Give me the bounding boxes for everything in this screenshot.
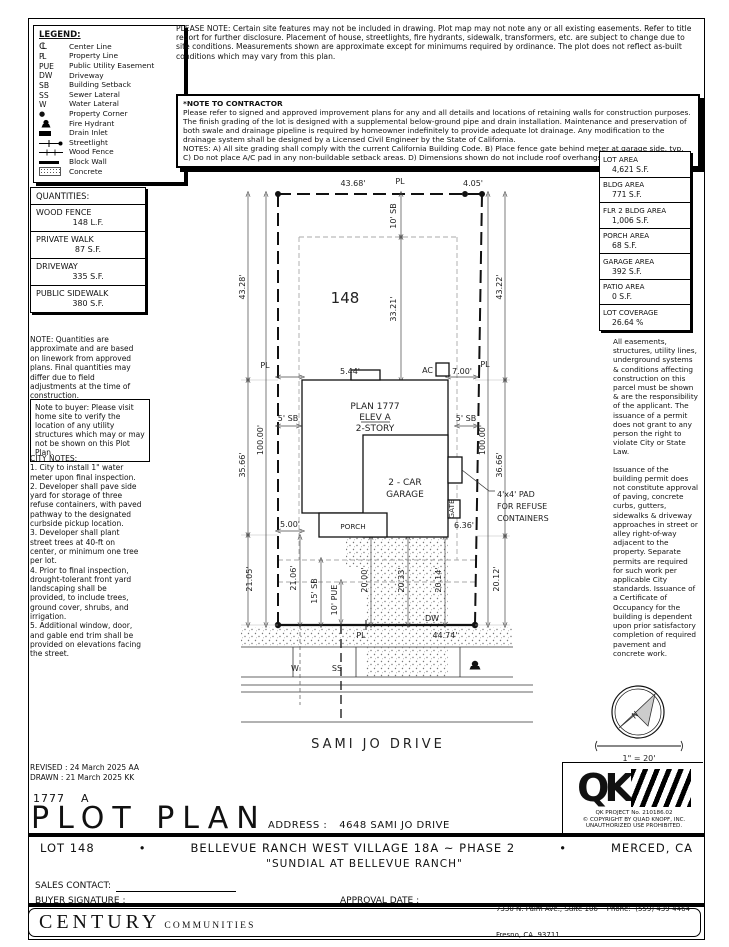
property-corner-icon: ●	[39, 110, 69, 118]
builder-brand-2: COMMUNITIES	[164, 921, 255, 931]
plan-label: PLAN 1777	[350, 402, 399, 412]
dim-20-00: 20.00'	[360, 567, 369, 592]
dim-sb5-right: 5' SB	[456, 414, 476, 423]
driveway-apron	[366, 647, 448, 677]
parkway-concrete	[241, 627, 513, 647]
legend-row-concrete: Concrete	[39, 167, 179, 177]
easement-note-1: All easements, structures, utility lines…	[613, 337, 700, 457]
garage-label-1: 2 - CAR	[388, 478, 421, 488]
dim-right-front: 20.12'	[492, 566, 501, 591]
dim-left-mid: 35.66'	[238, 452, 247, 477]
water-label: W	[291, 664, 299, 673]
dim-21-06: 21.06'	[289, 565, 298, 590]
revised-line: REVISED : 24 March 2025 AA	[30, 763, 139, 773]
dim-sb5-left: 5' SB	[278, 414, 298, 423]
table-row: PUBLIC SIDEWALK380 S.F.	[31, 286, 145, 312]
legend-row-drain-inlet: Drain Inlet	[39, 129, 179, 139]
quantities-title: QUANTITIES:	[31, 188, 145, 205]
right-property-line	[475, 194, 482, 625]
refuse-pad	[448, 457, 462, 483]
table-row: DRIVEWAY335 S.F.	[31, 259, 145, 286]
lot-label: LOT 148	[40, 841, 95, 855]
bullet: •	[139, 841, 147, 855]
centerline-symbol: CL	[39, 42, 69, 52]
dim-right-depth: 100.00'	[478, 425, 487, 455]
table-row: BLDG AREA771 S.F.	[600, 178, 690, 204]
contractor-note-body: Please refer to signed and approved impr…	[183, 108, 693, 144]
legend-row-wood-fence: Wood Fence	[39, 148, 179, 158]
table-row: LOT AREA4,621 S.F.	[600, 152, 690, 178]
easement-note-2: Issuance of the building permit does not…	[613, 465, 700, 658]
table-row: PRIVATE WALK87 S.F.	[31, 232, 145, 259]
water-symbol: W	[39, 100, 69, 109]
pl-label-top: PL	[395, 177, 405, 186]
legend-box: LEGEND: CLCenter Line PLProperty Line PU…	[33, 25, 185, 183]
concrete-icon	[39, 167, 61, 176]
dim-left-gap: 5.44'	[340, 367, 360, 376]
table-row: WOOD FENCE148 L.F.	[31, 205, 145, 232]
table-row: PORCH AREA68 S.F.	[600, 229, 690, 255]
pl-label-left: PL	[260, 361, 270, 370]
builder-address: 7330 N. Palm Ave., Suite 106 Phone: (559…	[496, 888, 690, 947]
dim-top-width: 43.68'	[340, 179, 365, 188]
city-note-item: 1. City to install 1" water meter upon f…	[30, 463, 143, 482]
city-note-item: 3. Developer shall plant street trees at…	[30, 528, 143, 565]
legend-row-pue: PUEPublic Utility Easement	[39, 62, 179, 72]
dim-front-width: 44.74'	[432, 631, 457, 640]
city-label: MERCED, CA	[611, 841, 693, 855]
qk-copyright: © COPYRIGHT BY QUAD KNOPF, INC.	[566, 817, 702, 824]
property-corner	[462, 191, 468, 197]
refuse-callout-1: 4'x4' PAD	[497, 490, 535, 499]
pl-label-bottom: PL	[356, 631, 366, 640]
dim-left-depth: 100.00'	[256, 425, 265, 455]
qk-project-number: QK PROJECT No. 210186.02	[566, 810, 702, 817]
refuse-callout-3: CONTAINERS	[497, 514, 549, 523]
dim-right-gap: 7.00'	[452, 367, 472, 376]
fire-hydrant-icon	[39, 119, 69, 128]
city-note-item: 4. Prior to final inspection, drought-to…	[30, 566, 143, 622]
pl-label-right: PL	[480, 360, 490, 369]
ac-pad	[436, 363, 449, 376]
bullet: •	[559, 841, 567, 855]
buyer-note-box: Note to buyer: Please visit home site to…	[30, 399, 150, 462]
qk-logo-block: QK QK PROJECT No. 210186.02 © COPYRIGHT …	[566, 766, 702, 830]
elev-label: ELEV A	[359, 413, 391, 423]
fire-hydrant-symbol	[470, 661, 481, 670]
city-notes-title: CITY NOTES:	[30, 454, 143, 463]
footer-title-row: LOT 148 • BELLEVUE RANCH WEST VILLAGE 18…	[28, 841, 705, 855]
plot-drawing: 43.68' PL 4.05' 43.28' 35.66' 21.05' 100…	[233, 170, 613, 760]
street-name: SAMI JO DRIVE	[311, 737, 445, 752]
dim-gate: 6.36'	[454, 521, 474, 530]
refuse-callout-2: FOR REFUSE	[497, 502, 547, 511]
property-corner	[479, 191, 485, 197]
city-note-item: 5. Additional window, door, and gable en…	[30, 621, 143, 658]
drain-inlet-icon	[39, 131, 51, 136]
address-value: 4648 SAMI JO DRIVE	[339, 820, 450, 831]
north-compass: N 1" = 20'	[593, 680, 693, 768]
legend-row-property-corner: ●Property Corner	[39, 110, 179, 120]
table-row: PATIO AREA0 S.F.	[600, 280, 690, 306]
quantities-note: NOTE: Quantities are approximate and are…	[30, 335, 142, 401]
legend-row-fire-hydrant: Fire Hydrant	[39, 119, 179, 129]
table-row: LOT COVERAGE26.64 %	[600, 305, 690, 330]
legend-row-block-wall: Block Wall	[39, 158, 179, 168]
ac-label: AC	[422, 366, 433, 375]
pue-symbol: PUE	[39, 62, 69, 71]
dim-left-front: 21.05'	[245, 566, 254, 591]
subdivision-label: BELLEVUE RANCH WEST VILLAGE 18A ~ PHASE …	[191, 841, 516, 855]
city-note-item: 2. Developer shall pave side yard for st…	[30, 482, 143, 528]
please-note-text: PLEASE NOTE: Certain site features may n…	[176, 24, 700, 61]
builder-brand: CENTURY	[39, 911, 160, 933]
driveway-symbol: DW	[39, 71, 69, 80]
dim-porch-side: 5.00'	[280, 520, 300, 529]
property-corner	[275, 191, 281, 197]
garage-label-2: GARAGE	[386, 490, 424, 500]
story-label: 2-STORY	[356, 424, 395, 434]
plot-plan-sheet: LEGEND: CLCenter Line PLProperty Line PU…	[0, 0, 729, 947]
easement-notes: All easements, structures, utility lines…	[613, 337, 700, 666]
dim-rear-to-house: 33.21'	[389, 296, 398, 321]
dim-15-sb: 15' SB	[310, 578, 319, 604]
setback-symbol: SB	[39, 81, 69, 90]
sewer-label: SS	[332, 664, 342, 673]
table-row: GARAGE AREA392 S.F.	[600, 254, 690, 280]
revision-block: REVISED : 24 March 2025 AA DRAWN : 21 Ma…	[30, 763, 139, 782]
dim-right-rear: 43.22'	[495, 274, 504, 299]
dim-20-33: 20.33'	[397, 567, 406, 592]
qk-stripes-icon	[631, 769, 691, 807]
dim-rear-sb: 10' SB	[389, 203, 398, 229]
dim-20-14: 20.14'	[434, 567, 443, 592]
community-name: "SUNDIAL AT BELLEVUE RANCH"	[0, 858, 729, 870]
streetlight-icon	[39, 139, 69, 148]
builder-logo-box: CENTURYCOMMUNITIES 7330 N. Palm Ave., Su…	[28, 908, 701, 937]
property-line-symbol: PL	[39, 52, 69, 61]
wood-fence-icon	[39, 148, 69, 157]
quantities-table: QUANTITIES: WOOD FENCE148 L.F. PRIVATE W…	[30, 187, 146, 313]
dw-label: DW	[425, 614, 439, 623]
address-line: ADDRESS :4648 SAMI JO DRIVE	[268, 820, 450, 831]
qk-unauthorized: UNAUTHORIZED USE PROHIBITED.	[566, 823, 702, 830]
contractor-note-title: *NOTE TO CONTRACTOR	[183, 99, 693, 108]
drawn-line: DRAWN : 21 March 2025 KK	[30, 773, 139, 783]
city-notes: CITY NOTES: 1. City to install 1" water …	[30, 454, 143, 659]
porch-label: PORCH	[340, 522, 365, 531]
dim-top-right: 4.05'	[463, 179, 483, 188]
address-label: ADDRESS :	[268, 820, 327, 831]
dim-right-mid: 36.66'	[495, 452, 504, 477]
gate-label: GATE	[447, 499, 456, 519]
block-wall-icon	[39, 161, 59, 164]
dim-left-rear: 43.28'	[238, 274, 247, 299]
lot-number: 148	[331, 289, 360, 307]
legend-row-setback: SBBuilding Setback	[39, 81, 179, 91]
qk-logo: QK	[577, 769, 629, 807]
sewer-symbol: SS	[39, 91, 69, 100]
dim-10-pue: 10' PUE	[330, 585, 339, 616]
page-title: PLOT PLAN	[31, 801, 267, 836]
legend-title: LEGEND:	[39, 30, 179, 40]
table-row: FLR 2 BLDG AREA1,006 S.F.	[600, 203, 690, 229]
